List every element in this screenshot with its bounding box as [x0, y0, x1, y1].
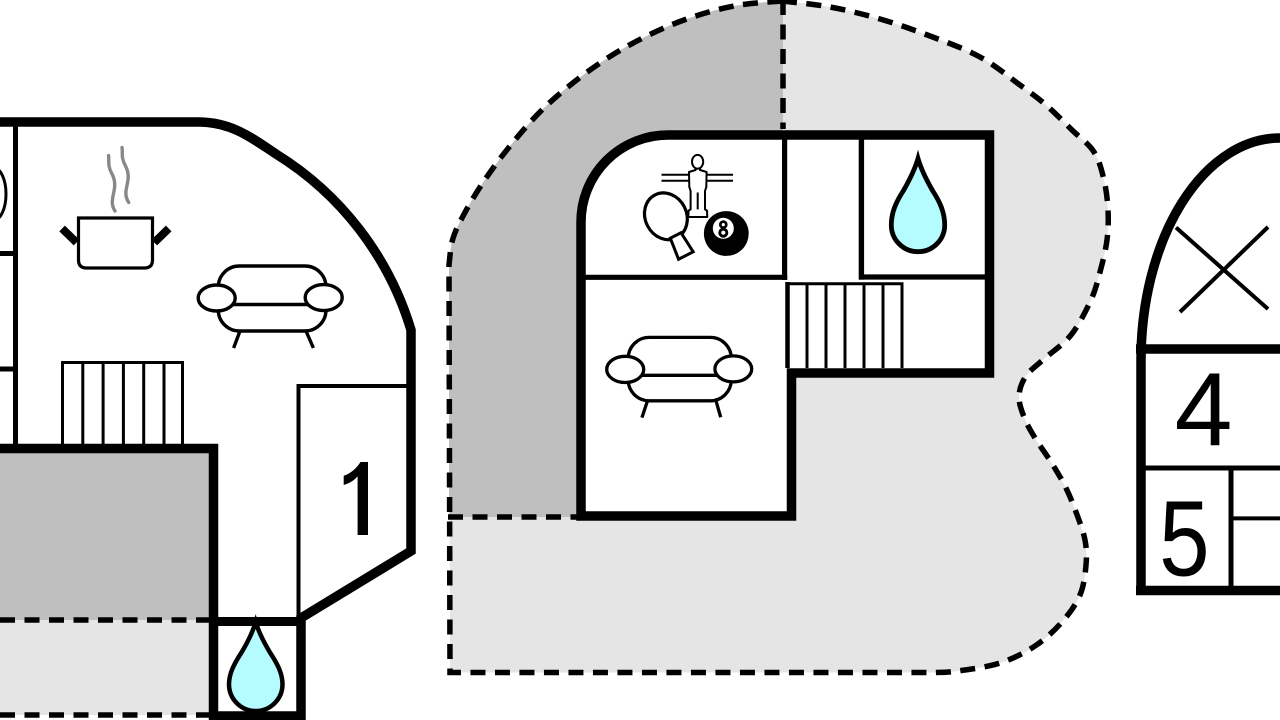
svg-text:4: 4 — [1175, 352, 1233, 468]
svg-text:5: 5 — [1159, 479, 1209, 599]
